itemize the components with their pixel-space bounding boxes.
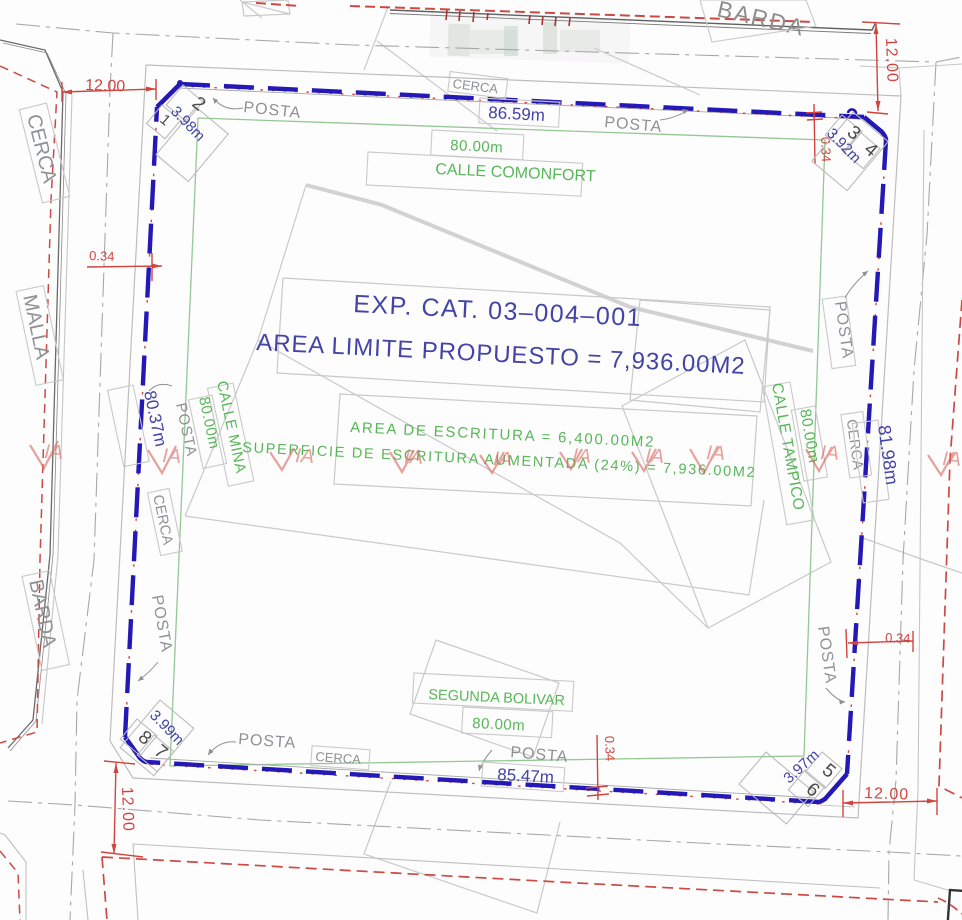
svg-text:12.00: 12.00 bbox=[882, 38, 901, 84]
svg-text:IA: IA bbox=[295, 445, 315, 468]
svg-text:CERCA: CERCA bbox=[315, 749, 362, 767]
svg-text:0.34: 0.34 bbox=[89, 248, 115, 264]
svg-text:IA: IA bbox=[645, 445, 665, 468]
svg-text:80.00m: 80.00m bbox=[450, 137, 504, 156]
svg-text:12.00: 12.00 bbox=[118, 787, 137, 833]
svg-text:IA: IA bbox=[44, 441, 64, 464]
svg-text:IA: IA bbox=[493, 448, 513, 471]
svg-text:IA: IA bbox=[820, 442, 840, 465]
svg-text:0.34: 0.34 bbox=[885, 630, 911, 646]
svg-text:IA: IA bbox=[572, 445, 592, 468]
svg-text:IA: IA bbox=[942, 448, 962, 471]
svg-text:85.47m: 85.47m bbox=[497, 765, 555, 787]
svg-text:IA: IA bbox=[404, 446, 424, 469]
svg-text:86.59m: 86.59m bbox=[488, 103, 546, 125]
svg-text:IA: IA bbox=[162, 445, 182, 468]
svg-text:12.00: 12.00 bbox=[864, 785, 910, 804]
svg-text:0.34: 0.34 bbox=[602, 736, 618, 762]
svg-text:12.00: 12.00 bbox=[85, 77, 126, 95]
svg-text:80.00m: 80.00m bbox=[472, 715, 526, 734]
svg-text:IA: IA bbox=[706, 442, 726, 465]
